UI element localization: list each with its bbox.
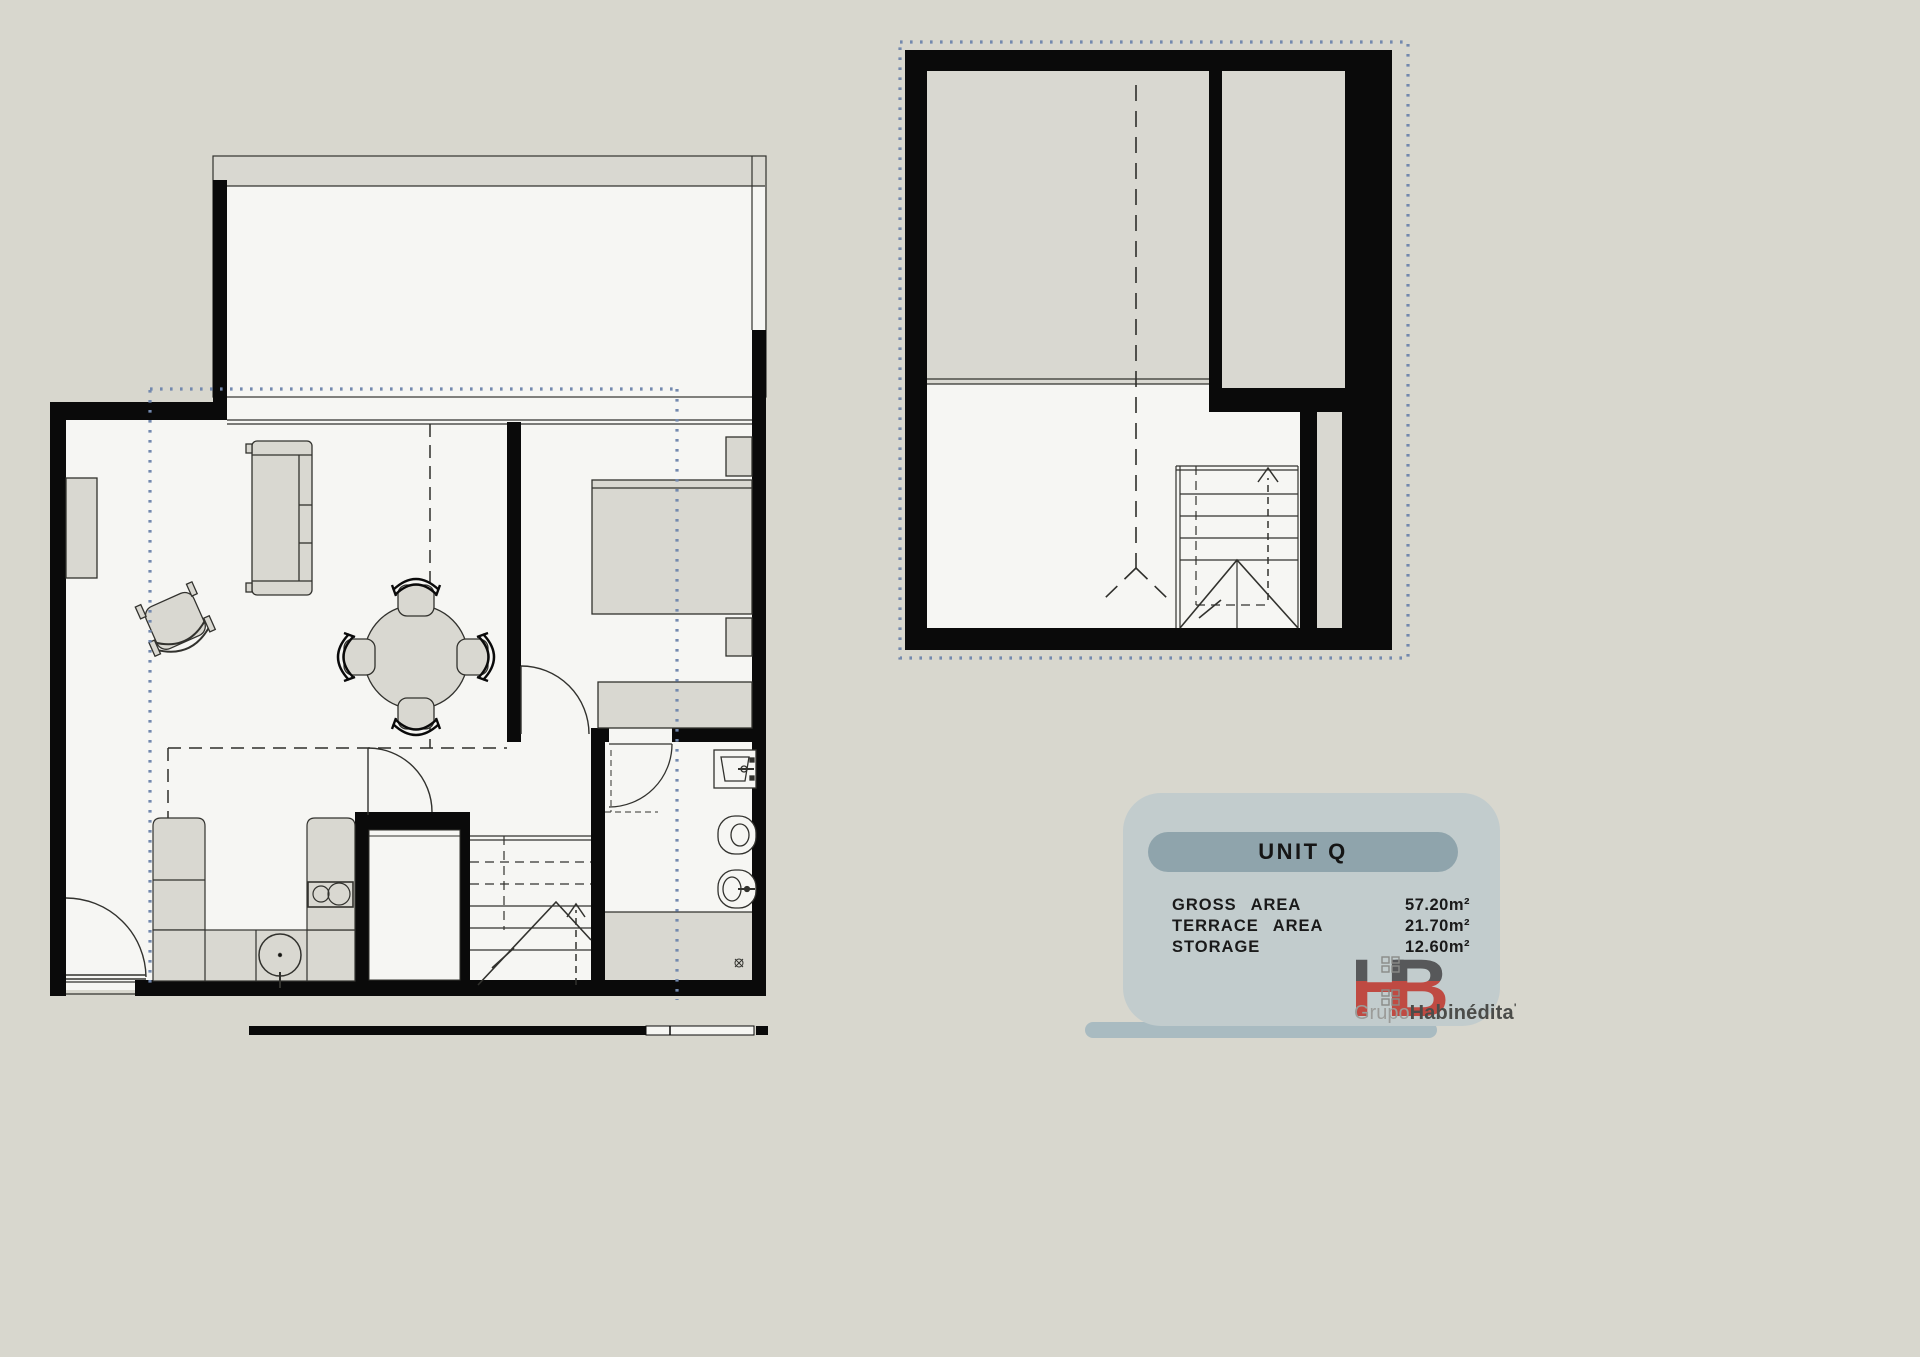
unit-title-pill: UNIT Q [1148,832,1458,872]
unit-title: UNIT Q [1258,839,1348,865]
floor-plan-drawing [0,0,1920,1357]
kitchen-counter-bottom [153,930,355,981]
kitchen-counter-left [153,818,205,930]
sofa [246,441,312,595]
company-logo: H H B B GrupoHabinédita' [1352,948,1522,1048]
upper-floor-plan [900,42,1408,658]
bidet [718,870,756,908]
area-value: 57.20m² [1405,896,1470,915]
attic-area [927,71,1209,384]
bedroom-bench [598,682,752,728]
bed [592,480,752,614]
logo-name: Habinédita [1410,1002,1514,1024]
closet [369,830,460,980]
scale-bar [249,1026,768,1035]
area-label: TERRACE AREA [1172,917,1323,936]
kitchen-counter-right [307,818,355,930]
logo-wordmark: GrupoHabinédita' [1354,1002,1516,1025]
area-value: 21.70m² [1405,917,1470,936]
floor-plan-sheet: UNIT Q GROSS AREA 57.20m² TERRACE AREA 2… [0,0,1920,1357]
area-label: STORAGE [1172,938,1260,957]
area-label: GROSS AREA [1172,896,1301,915]
ground-floor-plan [50,156,768,1035]
nightstand [726,618,752,656]
nightstand [726,437,752,476]
logo-mark: ' [1514,1002,1517,1014]
table-row: GROSS AREA 57.20m² [1172,896,1470,917]
logo-prefix: Grupo [1354,1002,1410,1024]
sideboard [66,478,97,578]
bathroom-sink [714,750,756,788]
storage-room [1222,71,1345,388]
table-row: TERRACE AREA 21.70m² [1172,917,1470,938]
duct-strip [1317,412,1342,628]
bedroom-furniture [592,437,752,728]
toilet [718,816,756,854]
